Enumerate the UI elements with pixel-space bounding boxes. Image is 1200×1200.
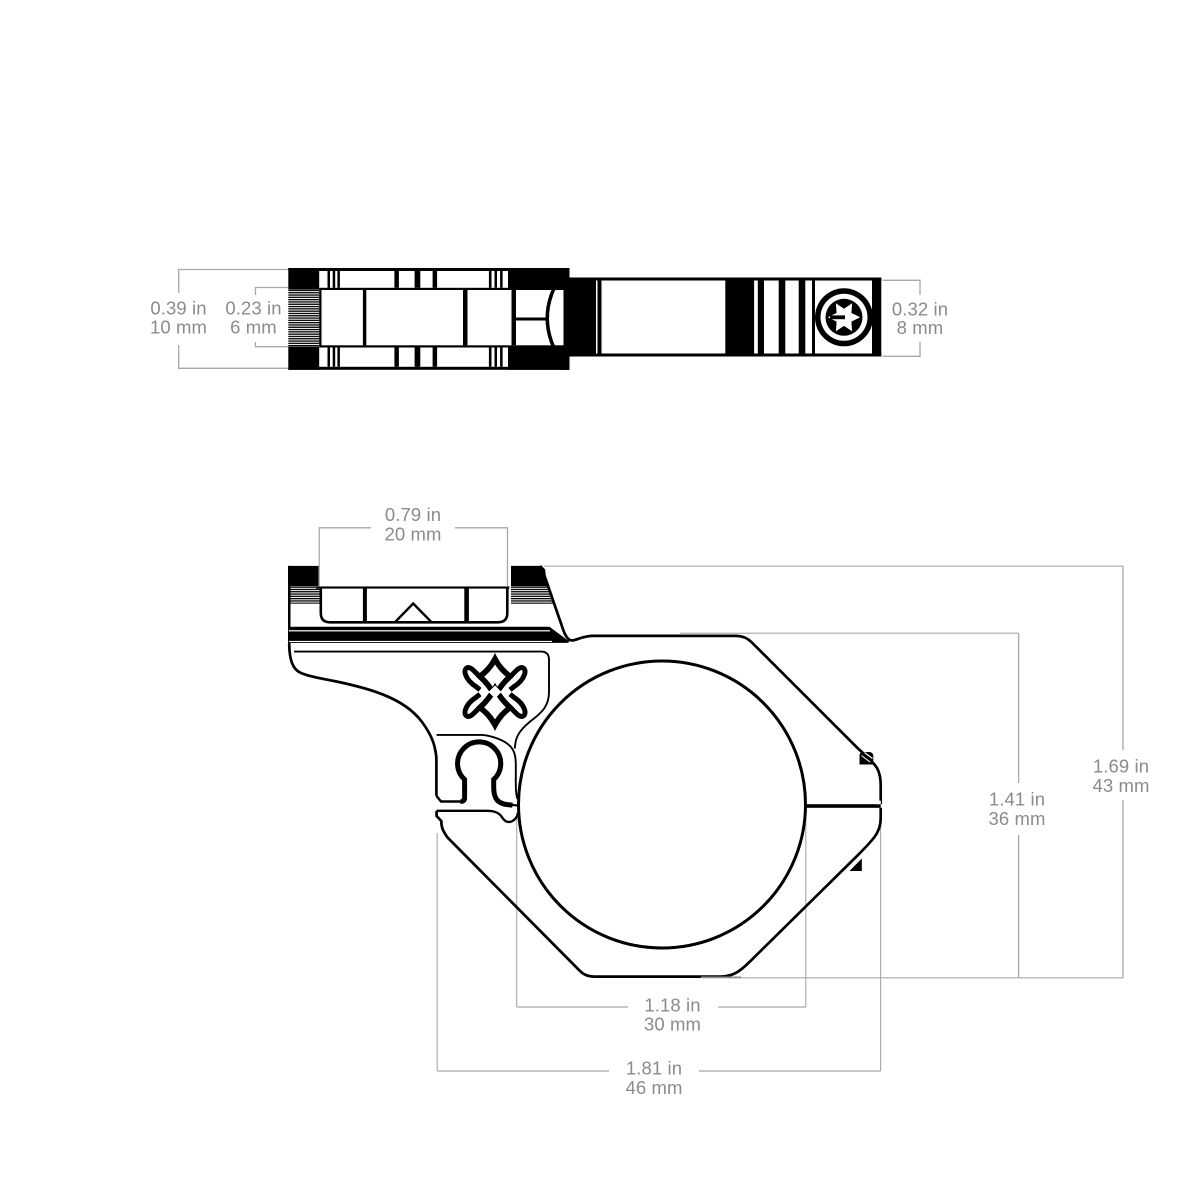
svg-text:20 mm: 20 mm <box>384 524 441 545</box>
svg-text:0.79 in: 0.79 in <box>385 504 441 525</box>
svg-text:36 mm: 36 mm <box>988 808 1045 829</box>
svg-text:8 mm: 8 mm <box>897 317 944 338</box>
svg-text:30 mm: 30 mm <box>644 1014 701 1035</box>
svg-text:43 mm: 43 mm <box>1092 775 1149 796</box>
svg-text:6 mm: 6 mm <box>230 316 277 337</box>
svg-text:1.81 in: 1.81 in <box>626 1058 682 1079</box>
svg-text:10 mm: 10 mm <box>150 316 207 337</box>
svg-text:1.18 in: 1.18 in <box>644 995 700 1016</box>
svg-text:1.41 in: 1.41 in <box>989 789 1045 810</box>
svg-text:46 mm: 46 mm <box>625 1077 682 1098</box>
svg-text:1.69 in: 1.69 in <box>1093 756 1149 777</box>
